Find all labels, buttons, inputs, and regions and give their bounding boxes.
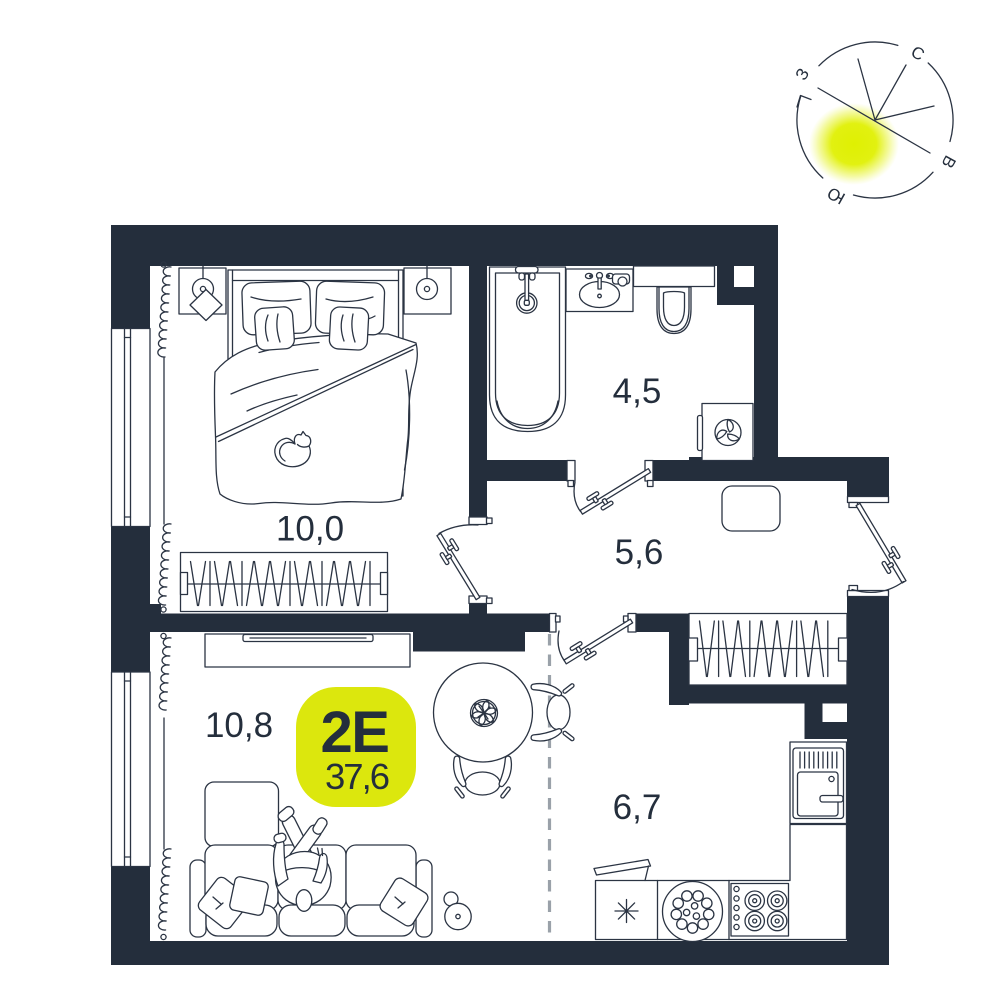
svg-text:37,6: 37,6: [325, 756, 389, 797]
svg-text:6,7: 6,7: [613, 788, 662, 827]
svg-text:5,6: 5,6: [615, 533, 664, 572]
svg-text:10,8: 10,8: [205, 706, 273, 745]
svg-text:4,5: 4,5: [613, 372, 662, 411]
svg-text:10,0: 10,0: [276, 510, 344, 549]
